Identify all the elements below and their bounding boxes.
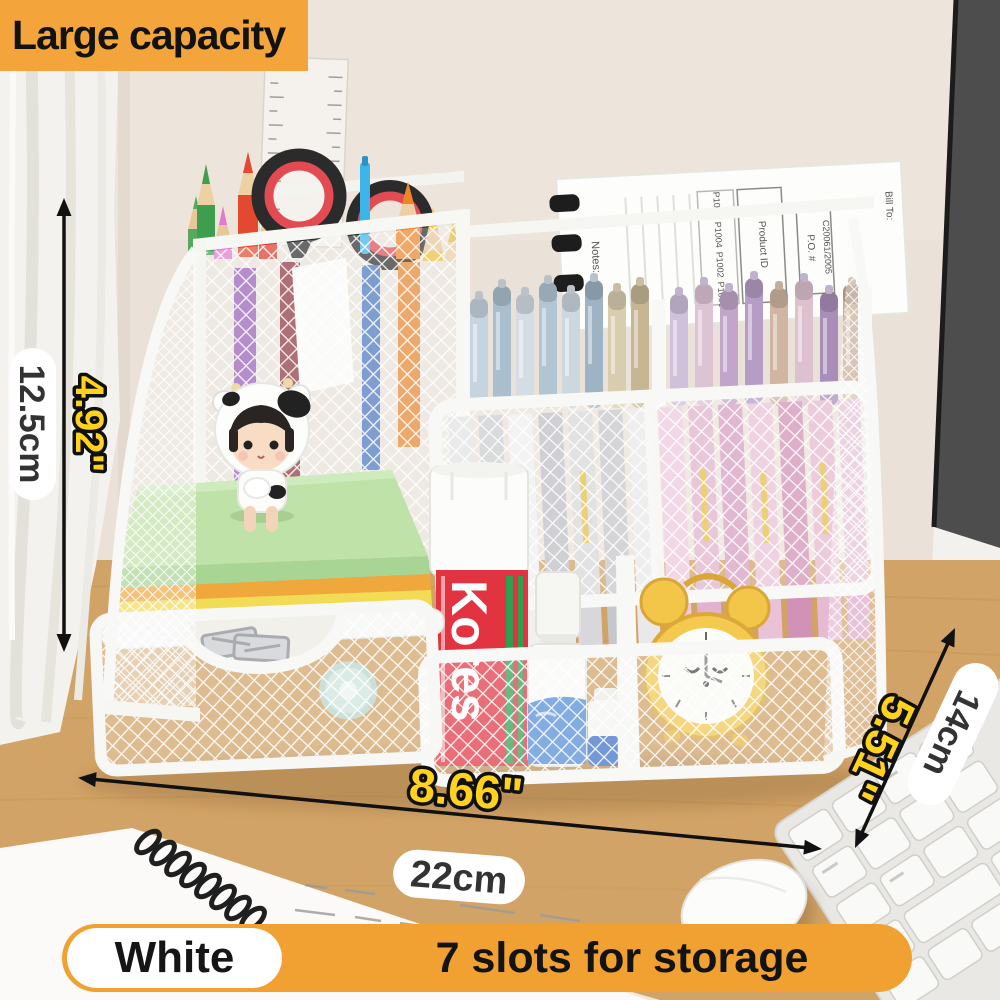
svg-text:P.O. #: P.O. #	[805, 234, 817, 262]
feature-banner: White 7 slots for storage	[62, 924, 912, 992]
svg-text:P1004: P1004	[713, 221, 724, 248]
large-capacity-banner: Large capacity	[0, 0, 308, 71]
width-imperial-label: 8.66"	[407, 758, 525, 822]
product-photo: Notes: P1003 P1004 P1002 P1006 Product I…	[0, 0, 1000, 1000]
svg-text:Bill To:: Bill To:	[882, 191, 895, 221]
svg-text:Notes:: Notes:	[589, 241, 603, 273]
front-tray	[424, 643, 840, 781]
slots-feature-label: 7 slots for storage	[352, 924, 892, 992]
scene: Notes: P1003 P1004 P1002 P1006 Product I…	[0, 0, 1000, 1000]
color-variant-label: White	[115, 933, 235, 983]
large-capacity-label: Large capacity	[12, 12, 285, 59]
width-metric-label: 22cm	[409, 853, 509, 902]
height-imperial-label: 4.92"	[67, 376, 111, 473]
height-metric-label: 12.5cm	[12, 365, 51, 484]
svg-text:P1002: P1002	[714, 251, 725, 278]
color-variant-pill: White	[67, 928, 282, 988]
